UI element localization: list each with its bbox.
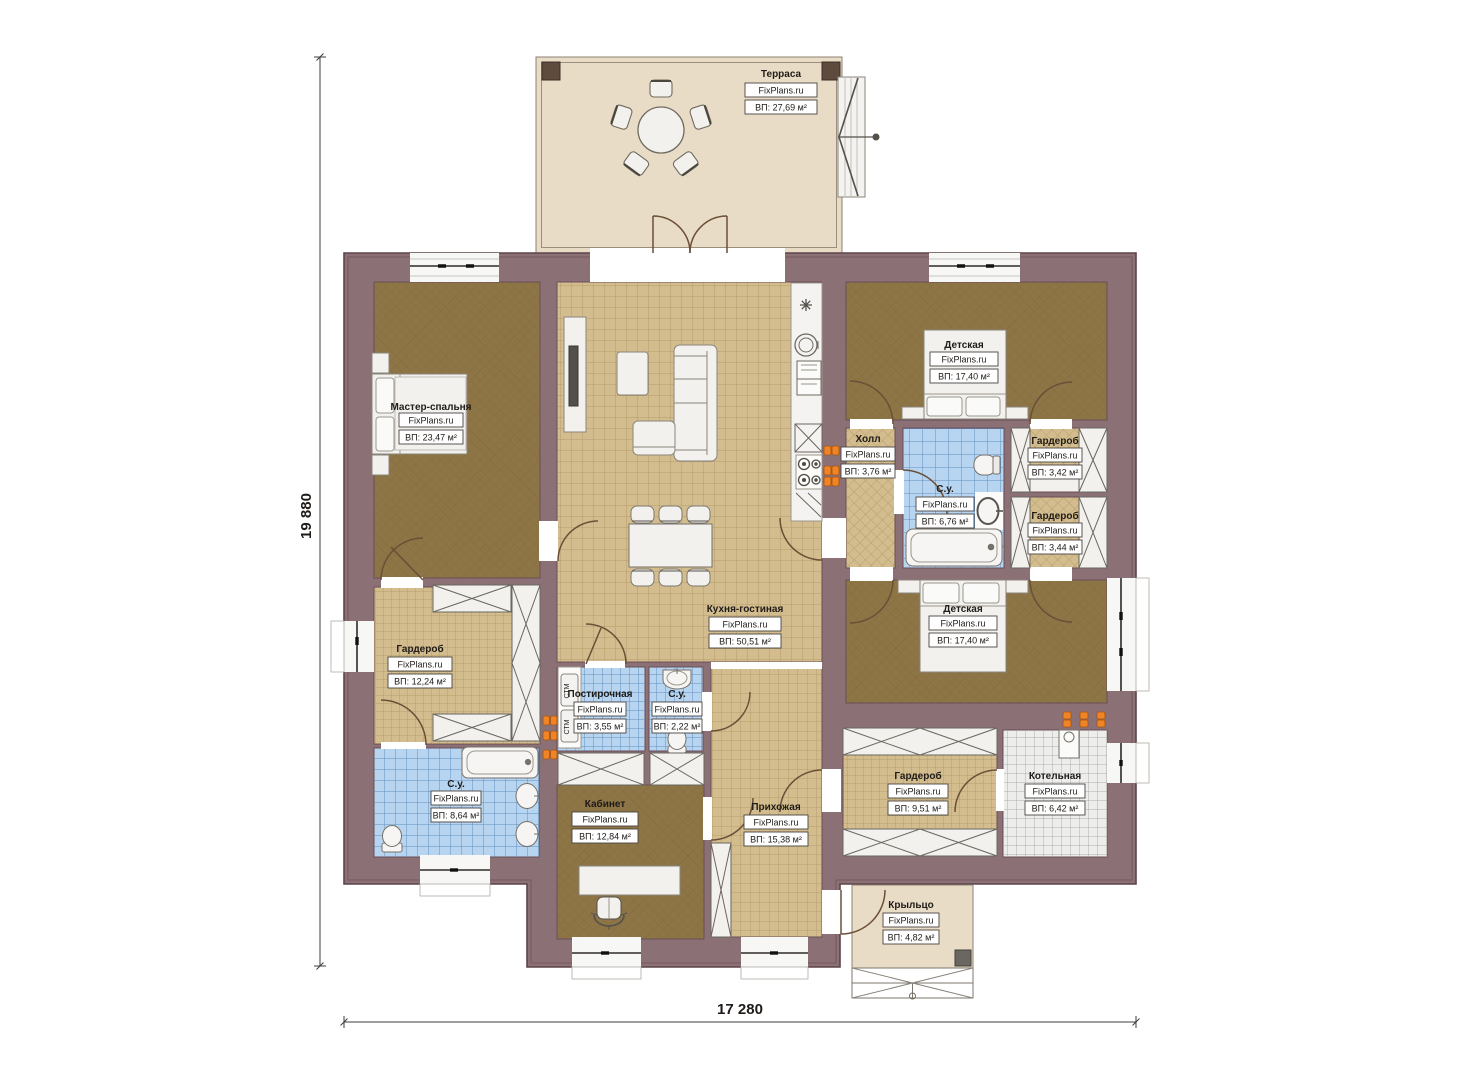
svg-text:С.у.: С.у. [447,779,465,790]
svg-text:Прихожая: Прихожая [751,802,801,813]
svg-text:FixPlans.ru: FixPlans.ru [758,86,803,96]
svg-text:Детская: Детская [943,604,983,615]
svg-text:Гардероб: Гардероб [1031,435,1078,447]
svg-text:FixPlans.ru: FixPlans.ru [1032,451,1077,461]
svg-text:ВП: 9,51 м²: ВП: 9,51 м² [895,804,942,814]
svg-text:FixPlans.ru: FixPlans.ru [1032,526,1077,536]
svg-text:FixPlans.ru: FixPlans.ru [408,416,453,426]
svg-text:FixPlans.ru: FixPlans.ru [582,815,627,825]
svg-text:С.у.: С.у. [668,689,686,700]
svg-text:Котельная: Котельная [1029,771,1082,782]
svg-text:Постирочная: Постирочная [568,689,633,700]
svg-text:Гардероб: Гардероб [894,770,941,782]
svg-text:FixPlans.ru: FixPlans.ru [753,818,798,828]
svg-text:Детская: Детская [944,340,984,351]
svg-text:ВП: 17,40 м²: ВП: 17,40 м² [937,636,989,646]
svg-text:ВП: 6,42 м²: ВП: 6,42 м² [1032,804,1079,814]
svg-text:FixPlans.ru: FixPlans.ru [888,916,933,926]
svg-text:FixPlans.ru: FixPlans.ru [397,660,442,670]
svg-text:ВП: 3,76 м²: ВП: 3,76 м² [845,467,892,477]
svg-text:ВП: 17,40 м²: ВП: 17,40 м² [938,372,990,382]
svg-text:FixPlans.ru: FixPlans.ru [941,355,986,365]
svg-text:ВП: 8,64 м²: ВП: 8,64 м² [433,811,480,821]
svg-text:Кухня-гостиная: Кухня-гостиная [707,604,784,615]
svg-text:FixPlans.ru: FixPlans.ru [922,500,967,510]
svg-text:ВП: 23,47 м²: ВП: 23,47 м² [405,433,457,443]
svg-text:ВП: 15,38 м²: ВП: 15,38 м² [750,835,802,845]
svg-text:FixPlans.ru: FixPlans.ru [433,794,478,804]
svg-text:19 880: 19 880 [298,493,315,539]
svg-text:FixPlans.ru: FixPlans.ru [577,705,622,715]
svg-text:17 280: 17 280 [717,1001,763,1018]
svg-text:Гардероб: Гардероб [396,643,443,655]
svg-text:Крыльцо: Крыльцо [888,900,934,911]
svg-text:Гардероб: Гардероб [1031,510,1078,522]
svg-text:FixPlans.ru: FixPlans.ru [722,620,767,630]
svg-text:FixPlans.ru: FixPlans.ru [845,450,890,460]
svg-text:ВП: 50,51 м²: ВП: 50,51 м² [719,637,771,647]
svg-text:СТМ: СТМ [564,719,571,734]
svg-text:ВП: 3,42 м²: ВП: 3,42 м² [1032,468,1079,478]
svg-text:ВП: 3,55 м²: ВП: 3,55 м² [577,722,624,732]
svg-text:FixPlans.ru: FixPlans.ru [654,705,699,715]
svg-text:ВП: 2,22 м²: ВП: 2,22 м² [654,722,701,732]
svg-text:С.у.: С.у. [936,484,954,495]
svg-text:FixPlans.ru: FixPlans.ru [1032,787,1077,797]
svg-text:ВП: 6,76 м²: ВП: 6,76 м² [922,517,969,527]
svg-text:Кабинет: Кабинет [585,798,626,810]
svg-text:ВП: 12,24 м²: ВП: 12,24 м² [394,677,446,687]
svg-text:ВП: 3,44 м²: ВП: 3,44 м² [1032,543,1079,553]
svg-text:Мастер-спальня: Мастер-спальня [390,402,471,413]
svg-text:Терраса: Терраса [761,69,802,80]
svg-text:ВП: 4,82 м²: ВП: 4,82 м² [888,933,935,943]
svg-text:ВП: 12,84 м²: ВП: 12,84 м² [579,832,631,842]
svg-text:FixPlans.ru: FixPlans.ru [940,619,985,629]
svg-text:FixPlans.ru: FixPlans.ru [895,787,940,797]
svg-text:Холл: Холл [855,434,880,445]
svg-text:ВП: 27,69 м²: ВП: 27,69 м² [755,103,807,113]
